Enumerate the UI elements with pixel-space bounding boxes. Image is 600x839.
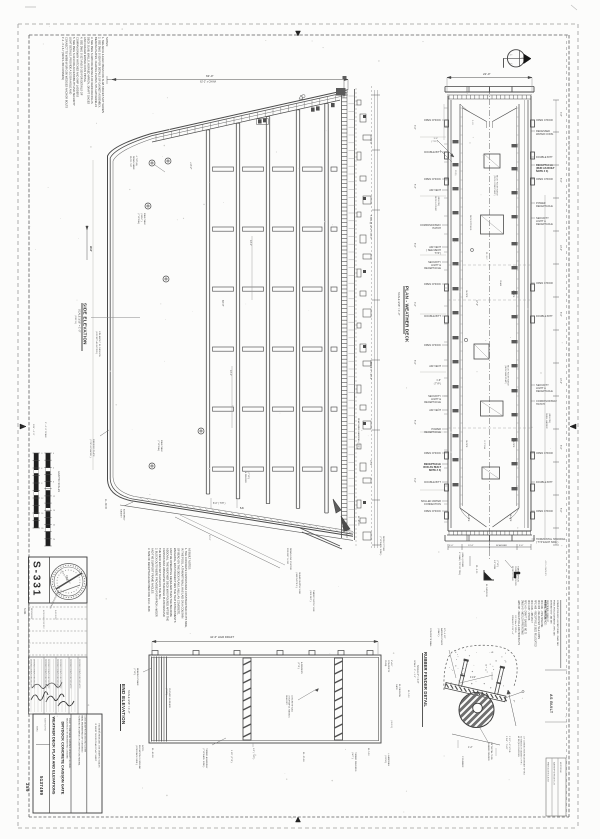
svg-text:13'-6": 13'-6" <box>369 460 371 466</box>
svg-text:AIR VENT: AIR VENT <box>429 364 441 368</box>
svg-text:EL 5.50: EL 5.50 <box>367 748 369 756</box>
svg-text:16: 16 <box>53 510 55 512</box>
svg-text:RFC # 8 - DRAFT GAUGE NO.'S: RFC # 8 - DRAFT GAUGE NO.'S <box>524 600 527 634</box>
svg-text:NE-46" FLUSH HATCH: NE-46" FLUSH HATCH <box>507 365 510 386</box>
svg-text:5-8: 5-8 <box>240 507 244 510</box>
svg-text:5'-3": 5'-3" <box>413 420 415 425</box>
svg-text:W-6': W-6' <box>89 246 93 252</box>
svg-text:NAVAL ENGINEERING DEPT. DESIGN: NAVAL ENGINEERING DEPT. DESIGN DIV. <box>81 716 84 754</box>
svg-text:CIVIL: CIVIL <box>65 575 68 582</box>
svg-text:MICROFILM: MICROFILM <box>559 762 561 773</box>
svg-text:+13'-2": +13'-2" <box>189 162 191 169</box>
svg-text:1/2" ( TYP ): 1/2" ( TYP ) <box>252 748 254 760</box>
svg-text:RFC #131 - 480 VOLT: RFC #131 - 480 VOLT <box>530 600 532 623</box>
svg-text:OPEN CHOCK: OPEN CHOCK <box>424 509 441 513</box>
svg-text:( NEW TANK PUMP ): ( NEW TANK PUMP ) <box>504 365 507 384</box>
svg-text:S-331: S-331 <box>23 608 26 615</box>
svg-text:EL CAISSON: EL CAISSON <box>485 584 488 597</box>
svg-text:RUBBER FENDER: RUBBER FENDER <box>487 742 489 761</box>
svg-text:3'-8": 3'-8" <box>559 112 561 117</box>
svg-text:( TOP & PLACED ): ( TOP & PLACED ) <box>89 439 92 458</box>
svg-text:IF SHEET IS LESS THAN 30"x42": IF SHEET IS LESS THAN 30"x42" SHEET <box>94 724 97 762</box>
svg-text:13'-6": 13'-6" <box>468 545 474 547</box>
svg-text:PL -3.00: PL -3.00 <box>475 565 477 574</box>
svg-text:MAIN TANK: MAIN TANK <box>143 213 146 225</box>
svg-text:RECEPTACLE: RECEPTACLE <box>536 389 553 393</box>
svg-text:0: 0 <box>41 453 42 455</box>
svg-text:A FENDERS: A FENDERS <box>300 662 303 674</box>
svg-text:1'-1 - 0 x 6-7 (MCM 1.459 COMM: 1'-1 - 0 x 6-7 (MCM 1.459 COMMON) <box>61 37 65 80</box>
svg-text:6" SLAB ( TYP OF TPH ): 6" SLAB ( TYP OF TPH ) <box>458 552 461 575</box>
svg-text:DESIGNED DRAWN CHECKED APPR: DESIGNED DRAWN CHECKED APPR <box>30 659 33 689</box>
svg-text:SLOPE: SLOPE <box>465 440 467 448</box>
svg-text:RFC #98 - RECEPTACLE SIZE RELO: RFC #98 - RECEPTACLE SIZE RELOCATED <box>534 600 537 647</box>
svg-text:( TYP DIA ): ( TYP DIA ) <box>157 440 160 451</box>
svg-text:24: 24 <box>53 539 55 541</box>
svg-text:12: 12 <box>41 498 43 500</box>
svg-text:( TYP ): ( TYP ) <box>165 688 167 695</box>
svg-text:DIVIDED GOV - AB 348: DIVIDED GOV - AB 348 <box>549 600 552 624</box>
svg-text:OPEN CHOCK: OPEN CHOCK <box>536 509 553 513</box>
svg-text:( BELOW ): ( BELOW ) <box>548 413 550 423</box>
svg-text:3. SEE DWG S-328 FOR DETAILS O: 3. SEE DWG S-328 FOR DETAILS OF REINFORC… <box>90 37 94 104</box>
svg-text:DESIGNED DRAWN CHECKED APPR: DESIGNED DRAWN CHECKED APPR <box>59 659 62 689</box>
svg-text:LIGHT DETAILS, PROVIDE A 1/2 D: LIGHT DETAILS, PROVIDE A 1/2 DIA HOLE AN… <box>68 37 72 94</box>
svg-text:TYP ): TYP ) <box>435 251 442 255</box>
svg-text:HATCH: HATCH <box>536 402 545 406</box>
svg-text:MARKING PLATE: MARKING PLATE <box>92 439 95 457</box>
svg-text:RUBBER FENDER DETAIL: RUBBER FENDER DETAIL <box>423 652 428 707</box>
svg-text:3 SPA 2'-5" = 28'-6": 3 SPA 2'-5" = 28'-6" <box>369 360 372 380</box>
svg-text:MAIN TANK: MAIN TANK <box>160 440 163 452</box>
svg-text:A REVISED PER RFC: A REVISED PER RFC <box>42 610 45 629</box>
svg-text:( WALL ) DRAIN: ( WALL ) DRAIN <box>461 552 464 568</box>
svg-text:( SEE NOTE 3 ): ( SEE NOTE 3 ) <box>295 572 297 588</box>
svg-text:WEATHER DECK PLAN AND ELEV: WEATHER DECK PLAN AND ELEVATIONS <box>52 717 57 795</box>
svg-text:AIR VENT: AIR VENT <box>429 188 441 192</box>
svg-text:8'-0" ( TYP ): 8'-0" ( TYP ) <box>213 503 226 505</box>
svg-text:5'-0": 5'-0" <box>449 545 454 547</box>
svg-text:TIMBER ASSEMBLY: TIMBER ASSEMBLY <box>205 748 208 769</box>
svg-text:8'-0": 8'-0" <box>559 178 561 183</box>
svg-text:10'-0": 10'-0" <box>208 535 210 541</box>
svg-text:1½: 1½ <box>510 53 513 57</box>
svg-text:SLOPE: SLOPE <box>467 514 469 522</box>
svg-text:AS BUILT NOTES:: AS BUILT NOTES: <box>188 548 192 570</box>
svg-text:( GALV ): ( GALV ) <box>437 628 440 637</box>
svg-text:1 1/2" ( TYP ): 1 1/2" ( TYP ) <box>230 750 232 763</box>
svg-text:AT REQD LOCATIONS: AT REQD LOCATIONS <box>517 736 520 757</box>
svg-text:10'-2": 10'-2" <box>229 370 232 376</box>
svg-text:13'-6": 13'-6" <box>559 245 561 251</box>
svg-text:WATER CONN.: WATER CONN. <box>536 132 554 136</box>
svg-text:3'-0": 3'-0" <box>434 138 439 140</box>
svg-text:9 1/2": 9 1/2" <box>470 677 476 679</box>
svg-text:( EXCEPT AS NOTED ): ( EXCEPT AS NOTED ) <box>95 331 98 354</box>
svg-text:BEARING PLATES, CHAFING PLATES: BEARING PLATES, CHAFING PLATES, STL HATC… <box>94 37 98 107</box>
svg-text:PSNS, FOUL ELEVATED - RFC 348: PSNS, FOUL ELEVATED - RFC 348 <box>553 600 556 636</box>
svg-text:NOTE # 4): NOTE # 4) <box>429 468 441 472</box>
svg-text:EL -35.99: EL -35.99 <box>302 752 304 762</box>
svg-text:1/2" GPA: 1/2" GPA <box>493 560 496 569</box>
svg-text:SCALE 3/16" = 1'-0": SCALE 3/16" = 1'-0" <box>78 309 82 332</box>
svg-text:PLAN - WEATHER DECK: PLAN - WEATHER DECK <box>405 286 410 343</box>
svg-text:REVISIONS: REVISIONS <box>30 608 32 620</box>
svg-text:11'-0" DIA: 11'-0" DIA <box>483 440 486 450</box>
svg-text:( TYP EACH SIDE ): ( TYP EACH SIDE ) <box>379 536 382 556</box>
svg-text:DESIGNED DRAWN CHECKED APPR: DESIGNED DRAWN CHECKED APPR <box>56 659 59 689</box>
svg-text:STRAIGHT 2-3/4" x 6": STRAIGHT 2-3/4" x 6" <box>511 615 514 635</box>
svg-text:ASSEMBLY: ASSEMBLY <box>123 509 126 521</box>
svg-text:SIZE FSCM NO: SIZE FSCM NO <box>44 718 46 731</box>
svg-text:HAS BEEN REDUCED. USE GRAPHIC: HAS BEEN REDUCED. USE GRAPHIC SCALES <box>98 724 101 769</box>
svg-text:3. SIZE OF RECEPTACLE REVISED: 3. SIZE OF RECEPTACLE REVISED FOR R.F.C.… <box>147 548 151 612</box>
svg-text:2. BLOCK-OUTS WERE PROVIDED FO: 2. BLOCK-OUTS WERE PROVIDED FOR APRON +W… <box>154 548 158 617</box>
svg-text:2 3/4" - 7 1/8": 2 3/4" - 7 1/8" <box>505 736 507 749</box>
svg-text:PLC'D TYP: PLC'D TYP <box>129 156 131 168</box>
svg-text:SLOPE: SLOPE <box>465 290 467 298</box>
svg-text:( 11.13 ): ( 11.13 ) <box>390 720 392 728</box>
svg-text:ROADWAY: ROADWAY <box>496 544 508 547</box>
svg-text:TIMBER FENDERS: TIMBER FENDERS <box>354 752 356 772</box>
svg-text:DECK FITTINGS: DECK FITTINGS <box>469 215 471 231</box>
svg-text:COMPANIONWAY HATCHES AND SHIP: COMPANIONWAY HATCHES AND SHIP LADDERS <box>76 37 80 97</box>
svg-text:DESIGNED DRAWN CHECKED APPR: DESIGNED DRAWN CHECKED APPR <box>69 659 72 689</box>
svg-text:( SEE DET ): ( SEE DET ) <box>309 590 311 602</box>
svg-text:5'-6": 5'-6" <box>559 508 561 513</box>
svg-text:8: 8 <box>53 482 54 484</box>
svg-text:5 SPA @ 12'-0" = 60'-0": 5 SPA @ 12'-0" = 60'-0" <box>369 215 372 239</box>
svg-text:13'-6": 13'-6" <box>559 378 561 384</box>
svg-text:DRAIN LINE SYSTEM: DRAIN LINE SYSTEM <box>289 548 292 570</box>
svg-text:NOTE # 4): NOTE # 4) <box>536 169 548 173</box>
svg-text:( REF B ): ( REF B ) <box>74 315 76 324</box>
svg-text:1/2" CONNECTION RECESSTANT STY: 1/2" CONNECTION RECESSTANT STYRO <box>522 736 525 775</box>
svg-text:CONNECT TO W/BB W 5/8 GSK WEDG: CONNECT TO W/BB W 5/8 GSK WEDGES ANCHOR … <box>65 37 69 108</box>
svg-text:S-331: S-331 <box>31 561 42 597</box>
svg-text:( TYP ): ( TYP ) <box>431 141 438 143</box>
svg-text:2 1/2" x 6" STUB: 2 1/2" x 6" STUB <box>508 736 510 753</box>
svg-text:12: 12 <box>53 496 55 498</box>
svg-text:8'-0": 8'-0" <box>413 360 415 365</box>
svg-text:DESIGNED DRAWN CHECKED APPR: DESIGNED DRAWN CHECKED APPR <box>44 659 47 689</box>
svg-text:RFC #137 - STUDS: RFC #137 - STUDS <box>527 600 529 621</box>
svg-text:NOTE:: NOTE: <box>141 745 143 752</box>
svg-text:4: 4 <box>41 468 42 470</box>
svg-text:L TYP (A): L TYP (A) <box>135 156 138 166</box>
svg-text:3/16" = 1'-0": 3/16" = 1'-0" <box>32 424 34 436</box>
svg-text:62'-2" x CHINA: 62'-2" x CHINA <box>200 81 216 84</box>
svg-text:+3011 x NAVSHIPS: +3011 x NAVSHIPS <box>544 560 547 577</box>
svg-text:8'-0": 8'-0" <box>559 445 561 450</box>
svg-text:OPEN CHOCK: OPEN CHOCK <box>424 451 441 455</box>
svg-text:EL CAISSON: EL CAISSON <box>398 684 401 697</box>
svg-text:12"x 1 1/2": 12"x 1 1/2" <box>443 628 445 639</box>
svg-text:8'-0": 8'-0" <box>413 243 415 248</box>
svg-text:3/4" METAL THRU: 3/4" METAL THRU <box>490 742 493 761</box>
svg-text:3" = 1'-0" SCALE: 3" = 1'-0" SCALE <box>44 422 47 438</box>
svg-text:AIR VENT: AIR VENT <box>429 408 441 412</box>
svg-text:OF BEAD ON THE DECK PLANS, HUL: OF BEAD ON THE DECK PLANS, HULL AN COVER… <box>177 548 181 615</box>
svg-text:1/2"-13A x 6" STUD: 1/2"-13A x 6" STUD <box>514 615 517 633</box>
svg-text:RFC #41 - PIPE SPACING: RFC #41 - PIPE SPACING <box>540 600 543 627</box>
svg-text:DECK LOCKER: DECK LOCKER <box>434 196 436 211</box>
svg-text:RECEPTACLE: RECEPTACLE <box>424 430 441 434</box>
svg-text:( BELOW ): ( BELOW ) <box>437 196 439 206</box>
svg-text:0: 0 <box>53 453 54 455</box>
svg-text:BEARING PLANE: BEARING PLANE <box>136 668 139 686</box>
svg-text:17'-6": 17'-6" <box>475 300 477 306</box>
svg-text:( TYP ): ( TYP ) <box>496 560 498 567</box>
svg-text:3'-2": 3'-2" <box>413 302 415 307</box>
svg-text:( TYP ): ( TYP ) <box>297 662 299 669</box>
svg-text:16: 16 <box>41 513 43 515</box>
svg-text:30'(D): 30'(D) <box>454 170 456 176</box>
svg-text:RECEPTACLE: RECEPTACLE <box>424 266 441 270</box>
svg-text:5. SEE DWG S-331 FOR ACCESSIBI: 5. SEE DWG S-331 FOR ACCESSIBILITY AND S… <box>72 37 76 106</box>
svg-text:DRYDOCK CONCRETE CAISSON GA: DRYDOCK CONCRETE CAISSON GATE <box>61 722 66 795</box>
svg-text:NE-46" FLUSH HATCH: NE-46" FLUSH HATCH <box>496 175 499 196</box>
svg-text:( W T ): ( W T ) <box>351 752 353 759</box>
svg-text:DOUBLE BITT: DOUBLE BITT <box>536 314 553 318</box>
svg-text:7'-6": 7'-6" <box>369 140 371 145</box>
svg-text:4. SEE DWG S-327 AND S-330 FOR: 4. SEE DWG S-327 AND S-330 FOR DETAILS O… <box>79 37 83 96</box>
svg-text:C RUBBER: C RUBBER <box>461 756 463 768</box>
svg-text:CERTIFIED / DWG 37: CERTIFIED / DWG 37 <box>546 600 548 622</box>
svg-text:OPEN CHOCK: OPEN CHOCK <box>536 451 553 455</box>
svg-text:RFC #66 - RELOCATED TELE CONN: RFC #66 - RELOCATED TELE CONN <box>537 600 540 639</box>
svg-text:AND THE SUPPORT FRAME ANGLES.: AND THE SUPPORT FRAME ANGLES. <box>151 548 155 594</box>
svg-text:RECEPTACLE: RECEPTACLE <box>424 400 441 404</box>
svg-text:GATE: GATE <box>395 684 398 690</box>
svg-text:CONCRETE WALL: CONCRETE WALL <box>429 628 432 648</box>
svg-text:SCALE 3" = 1'-0": SCALE 3" = 1'-0" <box>416 665 419 683</box>
svg-text:DESIGNED DRAWN CHECKED APPR: DESIGNED DRAWN CHECKED APPR <box>78 659 81 689</box>
svg-text:NAVSHIPYD PUGET 123: NAVSHIPYD PUGET 123 <box>553 762 556 786</box>
svg-text:CHAIN: CHAIN <box>499 280 502 287</box>
svg-text:SCALE : 3" = 1'-0": SCALE : 3" = 1'-0" <box>413 660 416 678</box>
svg-text:LWB #27 - RECEPTACLE ANCHOR BO: LWB #27 - RECEPTACLE ANCHOR BOLTS <box>517 600 520 645</box>
svg-text:PL -3.17: PL -3.17 <box>485 252 487 260</box>
svg-text:SEAL DET.: SEAL DET. <box>285 695 288 705</box>
svg-text:( TYP DIA ): ( TYP DIA ) <box>137 213 140 224</box>
svg-text:60'-0": 60'-0" <box>221 300 225 307</box>
svg-text:OPEN CHOCK: OPEN CHOCK <box>424 177 441 181</box>
svg-text:W0R1: W0R1 <box>36 726 38 732</box>
svg-text:THE DECK WAS SET FLUSH ON THE: THE DECK WAS SET FLUSH ON THE SILL. <box>158 548 162 600</box>
svg-text:GRAPHIC SCALES: GRAPHIC SCALES <box>57 471 60 492</box>
svg-text:DOUBLE BITT: DOUBLE BITT <box>424 314 441 318</box>
svg-text:1. SEE ARCH & ELEC DWGS FOR SL: 1. SEE ARCH & ELEC DWGS FOR SLAB SPACES … <box>101 37 105 113</box>
svg-text:OPEN CHOCK: OPEN CHOCK <box>536 118 553 122</box>
svg-text:ADDOVAL. THE WEATHER DECK WAS: ADDOVAL. THE WEATHER DECK WAS POLRED AFT… <box>166 548 170 621</box>
svg-text:359: 359 <box>25 783 30 792</box>
svg-text:63'-0": 63'-0" <box>206 74 214 78</box>
svg-text:NOTES:: NOTES: <box>105 37 109 47</box>
svg-text:7": 7" <box>512 700 515 702</box>
svg-text:20: 20 <box>41 528 43 530</box>
svg-text:DECK SLAB, WALLS, HORNED APRON: DECK SLAB, WALLS, HORNED APRON, DRAFT GA… <box>87 37 91 104</box>
svg-text:( TYP ): ( TYP ) <box>434 384 441 386</box>
svg-text:DESIGNED DRAWN CHECKED APPR: DESIGNED DRAWN CHECKED APPR <box>47 659 50 689</box>
svg-text:( TYP EACH SIDE ): ( TYP EACH SIDE ) <box>536 540 559 544</box>
svg-text:OPEN CHOCK: OPEN CHOCK <box>424 118 441 122</box>
svg-text:( STOPSMFUL HANDLE ): ( STOPSMFUL HANDLE ) <box>288 695 291 719</box>
svg-text:DRAIN SAME: DRAIN SAME <box>132 156 135 170</box>
svg-text:( TYP ): ( TYP ) <box>133 668 135 675</box>
svg-text:CONNECTION: CONNECTION <box>424 502 441 506</box>
svg-text:CAISSON WAS UPRIGHTED THROUGH: CAISSON WAS UPRIGHTED THROUGH PLATFORM A… <box>162 548 166 617</box>
svg-text:DWG # 8 - MODLD APRON DWG: DWG # 8 - MODLD APRON DWG <box>520 600 523 635</box>
svg-text:GASKET: GASKET <box>120 509 123 519</box>
svg-text:8: 8 <box>41 483 42 485</box>
svg-text:3'-2": 3'-2" <box>413 478 415 483</box>
svg-text:DOUBLE BITT: DOUBLE BITT <box>424 150 441 154</box>
svg-text:4: 4 <box>53 467 54 469</box>
svg-text:CODE 440 APPROVED DWG NO 513: CODE 440 APPROVED DWG NO 5137499 <box>84 716 87 752</box>
svg-text:OPEN CHOCK: OPEN CHOCK <box>536 177 553 181</box>
svg-text:20: 20 <box>53 525 55 527</box>
svg-text:SIDE ELEVATION: SIDE ELEVATION <box>83 303 88 345</box>
svg-text:DOUBLE BITT: DOUBLE BITT <box>424 480 441 484</box>
svg-text:ELEVATION IS SIMILAR: ELEVATION IS SIMILAR <box>138 745 141 769</box>
svg-text:DESIGNED DRAWN CHECKED APPR: DESIGNED DRAWN CHECKED APPR <box>33 659 36 689</box>
svg-text:PUGET SOUND NAVAL SHIPYARD, BR: PUGET SOUND NAVAL SHIPYARD, BREMERTON, W… <box>68 718 71 769</box>
svg-text:1. THE CONCRETE CAISSON WAS CO: 1. THE CONCRETE CAISSON WAS CONSTRUCTED … <box>184 548 188 628</box>
svg-text:EL 5.50: EL 5.50 <box>407 690 409 698</box>
svg-text:CURVED SURFACE: CURVED SURFACE <box>168 688 171 709</box>
svg-text:BACKING PLATE: BACKING PLATE <box>440 628 443 646</box>
svg-text:3-1/2: 3-1/2 <box>471 120 473 125</box>
svg-text:5'-6": 5'-6" <box>519 545 524 547</box>
svg-text:DOUBLE BITT: DOUBLE BITT <box>536 155 553 159</box>
svg-text:( TYP EACH SIDE ): ( TYP EACH SIDE ) <box>202 748 205 768</box>
svg-text:TIMBER SUPPLY LINE: TIMBER SUPPLY LINE <box>312 590 314 612</box>
svg-text:W/ DRG CONN: W/ DRG CONN <box>511 566 513 581</box>
svg-text:CONCRETE WALL: CONCRETE WALL <box>290 695 293 713</box>
svg-text:2. SEE DWG S-329 FOR DETAILS O: 2. SEE DWG S-329 FOR DETAILS OF GASKET A… <box>98 37 102 108</box>
svg-text:5137499: 5137499 <box>39 776 44 795</box>
svg-text:1'-2": 1'-2" <box>468 747 473 749</box>
svg-text:AND THE OPERATING REQULARD THE: AND THE OPERATING REQULARD THEN THE BULD… <box>169 548 173 617</box>
svg-text:DECK FITTING: DECK FITTING <box>382 536 384 551</box>
svg-text:SHEAR SUPPLY LINE: SHEAR SUPPLY LINE <box>298 572 301 595</box>
svg-text:COMPLETED RFC #3 CERTIFIED - D: COMPLETED RFC #3 CERTIFIED - DWG 348 <box>556 600 558 646</box>
svg-text:4 FENDER: 4 FENDER <box>244 472 246 483</box>
svg-text:EL -45.30: EL -45.30 <box>357 516 359 526</box>
svg-text:HATCH: HATCH <box>432 226 441 230</box>
svg-text:1¼: 1¼ <box>510 63 513 66</box>
svg-text:3'-0": 3'-0" <box>413 125 415 130</box>
svg-text:6"x16": 6"x16" <box>390 660 392 667</box>
svg-text:EL -46.00: EL -46.00 <box>104 499 106 510</box>
svg-text:SCHEDULE IN CHARGE OF CONSTRUC: SCHEDULE IN CHARGE OF CONSTRUCTION, FEDE… <box>78 716 81 766</box>
svg-text:WEIGHING, WAS POURED THEN THE: WEIGHING, WAS POURED THEN THE THAT ENTRA… <box>173 548 177 623</box>
svg-text:IN THE POOL. A THWART WALL HAS: IN THE POOL. A THWART WALL HAS LAID ON A… <box>180 548 184 619</box>
svg-text:CONCRETE: CONCRETE <box>387 660 389 673</box>
svg-text:OPEN CHOCK: OPEN CHOCK <box>536 281 553 285</box>
svg-text:( TECH CONE PUMP ): ( TECH CONE PUMP ) <box>493 175 495 196</box>
svg-text:DOUBLE BITT: DOUBLE BITT <box>536 480 553 484</box>
svg-text:22'-0": 22'-0" <box>483 72 491 76</box>
svg-text:END ELEVATION: END ELEVATION <box>121 684 126 725</box>
svg-text:AS BUILT: AS BUILT <box>549 694 553 714</box>
svg-text:8'-0": 8'-0" <box>559 312 561 317</box>
svg-text:OPEN CHOCK: OPEN CHOCK <box>424 282 441 286</box>
svg-text:SLOPE: SLOPE <box>509 514 511 522</box>
svg-text:1'-6": 1'-6" <box>436 380 441 382</box>
svg-text:OPEN CHOCK: OPEN CHOCK <box>424 343 441 347</box>
svg-text:( VENT ): ( VENT ) <box>140 213 142 222</box>
svg-text:( 13.50 ): ( 13.50 ) <box>384 755 386 763</box>
svg-text:B AS BUILT: B AS BUILT <box>54 610 57 621</box>
svg-text:PSNS 4148 N 2 A 242: PSNS 4148 N 2 A 242 <box>547 762 550 783</box>
svg-text:W/ WEDGE-IT GASKET ( TYP ): W/ WEDGE-IT GASKET ( TYP ) <box>520 736 523 765</box>
svg-text:RECEPTACLE: RECEPTACLE <box>536 204 553 208</box>
svg-text:44'-6" HGR DRAFT: 44'-6" HGR DRAFT <box>210 635 235 639</box>
svg-text:( TYP ): ( TYP ) <box>247 472 249 479</box>
svg-text:REGISTERED ENGR: REGISTERED ENGR <box>48 590 59 610</box>
svg-text:13'-2": 13'-2" <box>249 240 252 246</box>
svg-text:RECEPTACLE: RECEPTACLE <box>536 222 553 226</box>
svg-text:SHELL LADDER: SHELL LADDER <box>545 413 548 429</box>
svg-text:( FOR EACH SIDE ): ( FOR EACH SIDE ) <box>135 745 138 765</box>
svg-text:13M ABOUT EL CAISSON: 13M ABOUT EL CAISSON <box>98 331 101 357</box>
svg-text:REMOVABLE HANDRAIL ( TYP ): REMOVABLE HANDRAIL ( TYP ) <box>357 418 360 449</box>
svg-text:FOR DET S-330: FOR DET S-330 <box>286 548 288 565</box>
svg-text:EL -46.99: EL -46.99 <box>151 748 153 758</box>
svg-text:SCALE 3/16" = 1'-0": SCALE 3/16" = 1'-0" <box>397 292 401 315</box>
svg-text:SCALE 3/16" = 1'-0": SCALE 3/16" = 1'-0" <box>127 690 131 713</box>
svg-text:5'-3": 5'-3" <box>413 184 415 189</box>
svg-text:AND CHILLED WATER CONN PIPING: AND CHILLED WATER CONN PIPING <box>83 37 87 82</box>
svg-text:HANDRAIL: HANDRAIL <box>387 755 390 767</box>
